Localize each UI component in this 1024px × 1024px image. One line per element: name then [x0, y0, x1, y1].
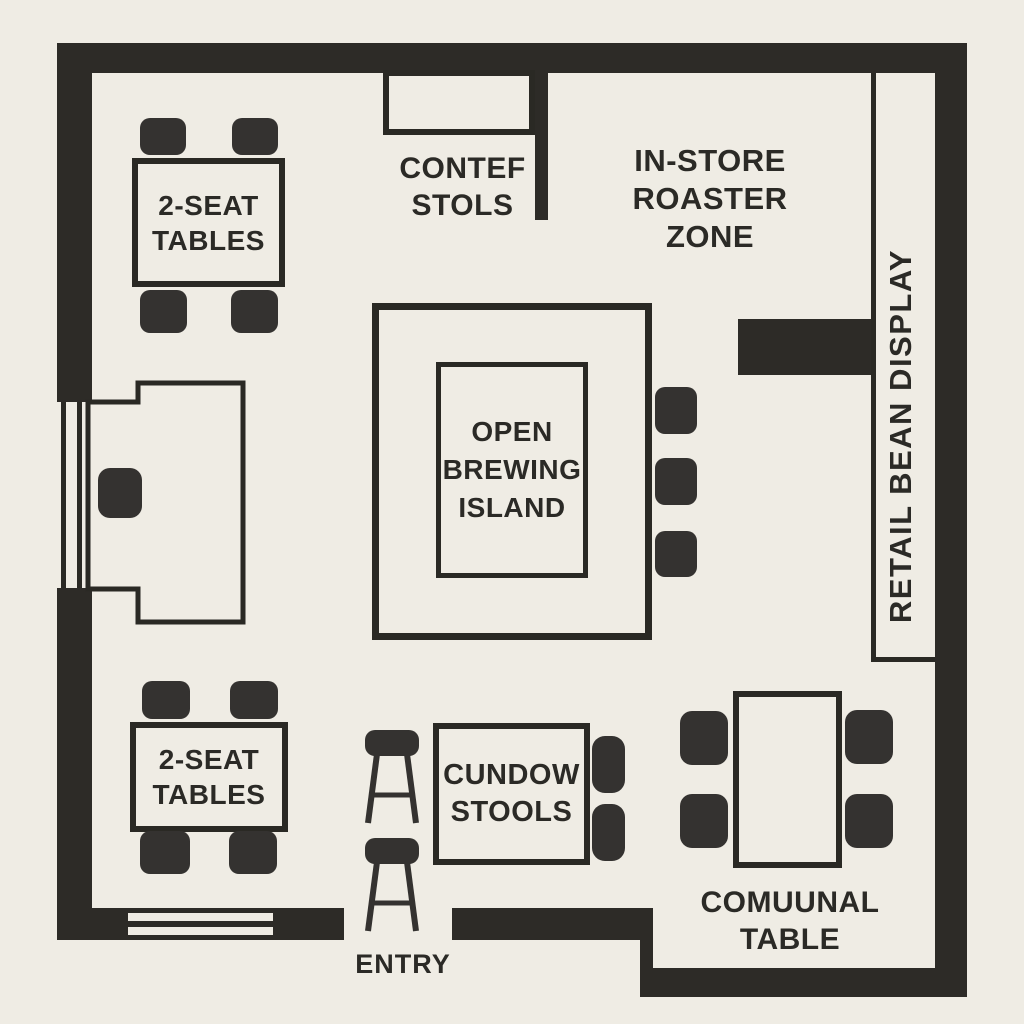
chair-icon — [655, 387, 697, 434]
communal-table-label: COMUUNAL TABLE — [680, 884, 900, 958]
chair-icon — [229, 831, 277, 874]
bottom-window-icon — [128, 927, 273, 935]
retail-display-line-vertical — [871, 73, 876, 662]
chair-icon — [680, 711, 728, 765]
wall-left-upper — [57, 43, 92, 402]
chair-icon — [655, 458, 697, 505]
chair-icon — [98, 468, 142, 518]
stool-seat-icon — [592, 804, 625, 861]
wall-right — [935, 43, 967, 997]
chair-icon — [140, 118, 186, 155]
bottom-window-icon — [128, 913, 273, 921]
chair-icon — [845, 710, 893, 764]
roaster-zone-label: IN-STORE ROASTER ZONE — [615, 142, 805, 256]
counter-stools-label: CONTEF STOLS — [380, 150, 545, 224]
chair-icon — [231, 290, 278, 333]
chair-icon — [140, 831, 190, 874]
wall-bottom-middle — [452, 908, 653, 940]
communal-table — [733, 691, 842, 868]
entry-label: ENTRY — [342, 948, 464, 981]
chair-icon — [230, 681, 278, 719]
two-seat-tables-top-label: 2-SEAT TABLES — [132, 188, 285, 258]
left-window-icon — [61, 402, 66, 588]
wall-top — [57, 43, 967, 73]
window-stools-label: CUNDOW STOOLS — [433, 757, 590, 831]
stool-side-icon — [360, 729, 424, 826]
wall-roaster-stub — [738, 319, 871, 375]
two-seat-tables-bottom-label: 2-SEAT TABLES — [130, 742, 288, 812]
wall-bottom-right — [640, 968, 967, 997]
stool-side-icon — [360, 837, 424, 934]
chair-icon — [140, 290, 187, 333]
floor-plan: CONTEF STOLS IN-STORE ROASTER ZONE 2-SEA… — [0, 0, 1024, 1024]
chair-icon — [680, 794, 728, 848]
wall-left-lower — [57, 588, 92, 940]
chair-icon — [845, 794, 893, 848]
retail-display-line-bottom — [871, 657, 935, 662]
chair-icon — [142, 681, 190, 719]
chair-icon — [655, 531, 697, 577]
retail-bean-display-label: RETAIL BEAN DISPLAY — [882, 221, 922, 651]
chair-icon — [232, 118, 278, 155]
counter-box — [383, 70, 535, 135]
stool-seat-icon — [592, 736, 625, 793]
brewing-island-label: OPEN BREWING ISLAND — [436, 413, 588, 527]
